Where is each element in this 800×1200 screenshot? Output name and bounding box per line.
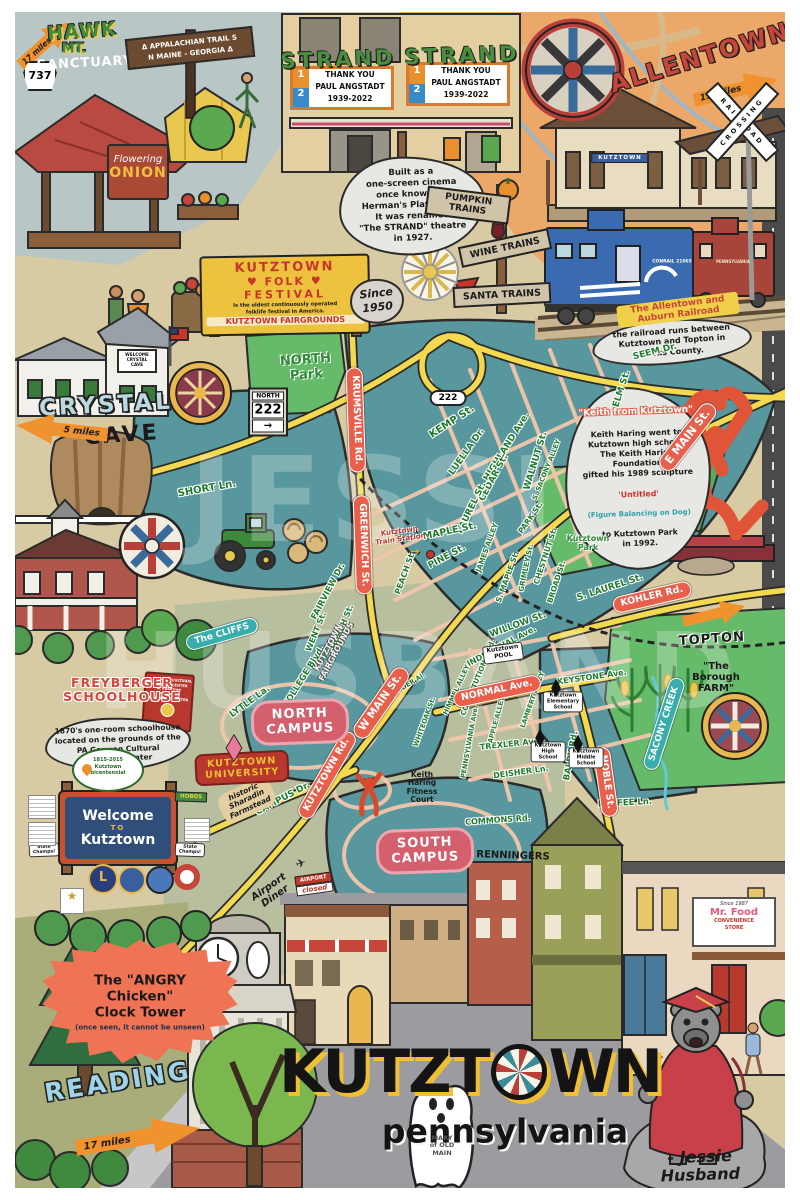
poster-subtitle: pennsylvania <box>382 1114 628 1151</box>
onion-word: ONION <box>109 165 167 181</box>
club-badge-3 <box>146 866 174 894</box>
kutztown-university-banner: KUTZTOWN UNIVERSITY <box>194 750 290 787</box>
strand-sign-right: STRAND <box>404 42 520 70</box>
angry-chicken-subtext: (once seen, it cannot be unseen) <box>75 1024 205 1032</box>
welcome-line2: TO <box>111 824 126 832</box>
hex-sign-farm <box>702 693 768 759</box>
pa-german-medallion <box>160 703 175 718</box>
caboose-red-lettering: PENNSYLVANIA <box>716 260 750 264</box>
marquee-text-left: THANK YOU PAUL ANGSTADT 1939-2022 <box>309 69 391 107</box>
keith-note-figure: (Figure Balancing on Dog) <box>578 508 700 521</box>
route-222-number: 222 <box>252 402 284 419</box>
folk-festival-sign: KUTZTOWN ♥ FOLK ♥ FESTIVAL Is the oldest… <box>199 254 370 337</box>
screen-2-badge: 2 <box>293 88 309 107</box>
title-part1: KUTZT <box>279 1037 489 1107</box>
ghost-label: MARY of OLD MAIN <box>430 1135 455 1157</box>
label-elementary-school: Kutztown Elementary School <box>543 691 583 712</box>
map-art: JESSIE HUSBAND 17 miles 737 HAWK MT. SAN… <box>0 0 800 1200</box>
title-hex-o-icon <box>491 1044 547 1100</box>
keith-note-untitled: 'Untitled' <box>577 487 699 501</box>
crystal-cave-building-sign: WELCOME CRYSTAL CAVE <box>122 352 152 368</box>
north-park-label: NORTH Park <box>279 352 332 385</box>
welcome-line1: Welcome <box>82 808 153 824</box>
mr-food-sign: Since 1987 Mr. Food CONVENIENCE STORE <box>692 897 776 947</box>
mr-food-name: Mr. Food <box>694 907 774 918</box>
club-badge-2 <box>118 866 146 894</box>
frame-bottom <box>0 1188 800 1200</box>
route-222-oval: 222 <box>430 390 467 406</box>
mr-food-sub: CONVENIENCE STORE <box>694 918 774 931</box>
angry-chicken-text: The "ANGRY Chicken" Clock Tower <box>94 972 186 1021</box>
south-campus-blob: SOUTH CAMPUS <box>375 827 475 875</box>
label-high-school: Kutztown High School <box>531 741 566 762</box>
station-name-sign: KUTZTOWN <box>591 153 648 163</box>
train-station-arrow: → <box>410 546 419 558</box>
plaque-state-champs-right: State Champs! <box>175 842 206 857</box>
crystal-cave-miles: 5 miles <box>63 425 108 440</box>
road-greenwich: GREENWICH St. <box>353 495 373 595</box>
poster-title: KUTZT WN <box>279 1037 661 1107</box>
train-station-dot <box>426 550 435 559</box>
label-middle-school: Kutztown Middle School <box>569 747 604 768</box>
freyberger-title: FREYBERGER SCHOOLHOUSE <box>63 676 181 704</box>
title-part2: WN <box>549 1037 661 1107</box>
label-fitness-court: Keith Haring Fitness Court <box>407 771 438 805</box>
hex-sign-cave <box>169 362 231 424</box>
plaque-blank-2 <box>28 822 56 846</box>
plaque-blank-3 <box>184 818 210 842</box>
festival-fairgrounds: KUTZTOWN FAIRGROUNDS <box>206 315 364 327</box>
flowering-onion-sign: Flowering ONION <box>107 144 169 200</box>
marquee-text-right: THANK YOU PAUL ANGSTADT 1939-2022 <box>425 65 507 103</box>
borough-farm-label: "The Borough FARM" <box>692 661 740 695</box>
fitness-court-figure-icon <box>350 768 386 820</box>
club-badge-4 <box>174 864 200 890</box>
welcome-line3: Kutztown <box>81 832 156 848</box>
flowering-word: Flowering <box>109 154 167 165</box>
screen-2-badge-2: 2 <box>409 84 425 103</box>
marquee-screen-numbers: 1 2 <box>293 69 309 107</box>
hobos-sign: HOBOS <box>175 791 207 802</box>
frame-top <box>0 0 800 12</box>
lions-club-badge: L <box>88 864 118 894</box>
route-222-north: NORTH <box>252 392 284 401</box>
plaque-blank-1 <box>28 795 56 819</box>
frame-left <box>0 0 15 1200</box>
hex-sign-compass <box>526 23 620 117</box>
kutztown-university-text: KUTZTOWN UNIVERSITY <box>204 755 279 781</box>
label-kutztown-park: Kutztown Park <box>567 535 610 553</box>
keith-note-title: "Keith from Kutztown" <box>575 405 697 421</box>
frame-right <box>785 0 800 1200</box>
poster-kutztown-map: JESSIE HUSBAND 17 miles 737 HAWK MT. SAN… <box>0 0 800 1200</box>
strand-sign-left: STRAND <box>280 46 396 74</box>
welcome-sign: Welcome TO Kutztown <box>58 790 178 866</box>
artist-signature: - Jessie Husband <box>649 1146 750 1185</box>
north-campus-blob: NORTH CAMPUS <box>250 698 350 746</box>
route-222-arrow: → <box>252 420 284 433</box>
welcome-sign-panel: Welcome TO Kutztown <box>65 797 171 859</box>
caboose-blue-lettering: CONRAIL 21065 <box>652 259 692 264</box>
hex-sign-quilt <box>120 514 184 578</box>
masonic-badge: ★ <box>60 888 84 914</box>
route-222-sign: NORTH 222 → <box>248 388 288 437</box>
marquee-screen-numbers-2: 1 2 <box>409 65 425 103</box>
bicentennial-logo: 1815-2015 Kutztown bicentennial <box>72 748 144 792</box>
